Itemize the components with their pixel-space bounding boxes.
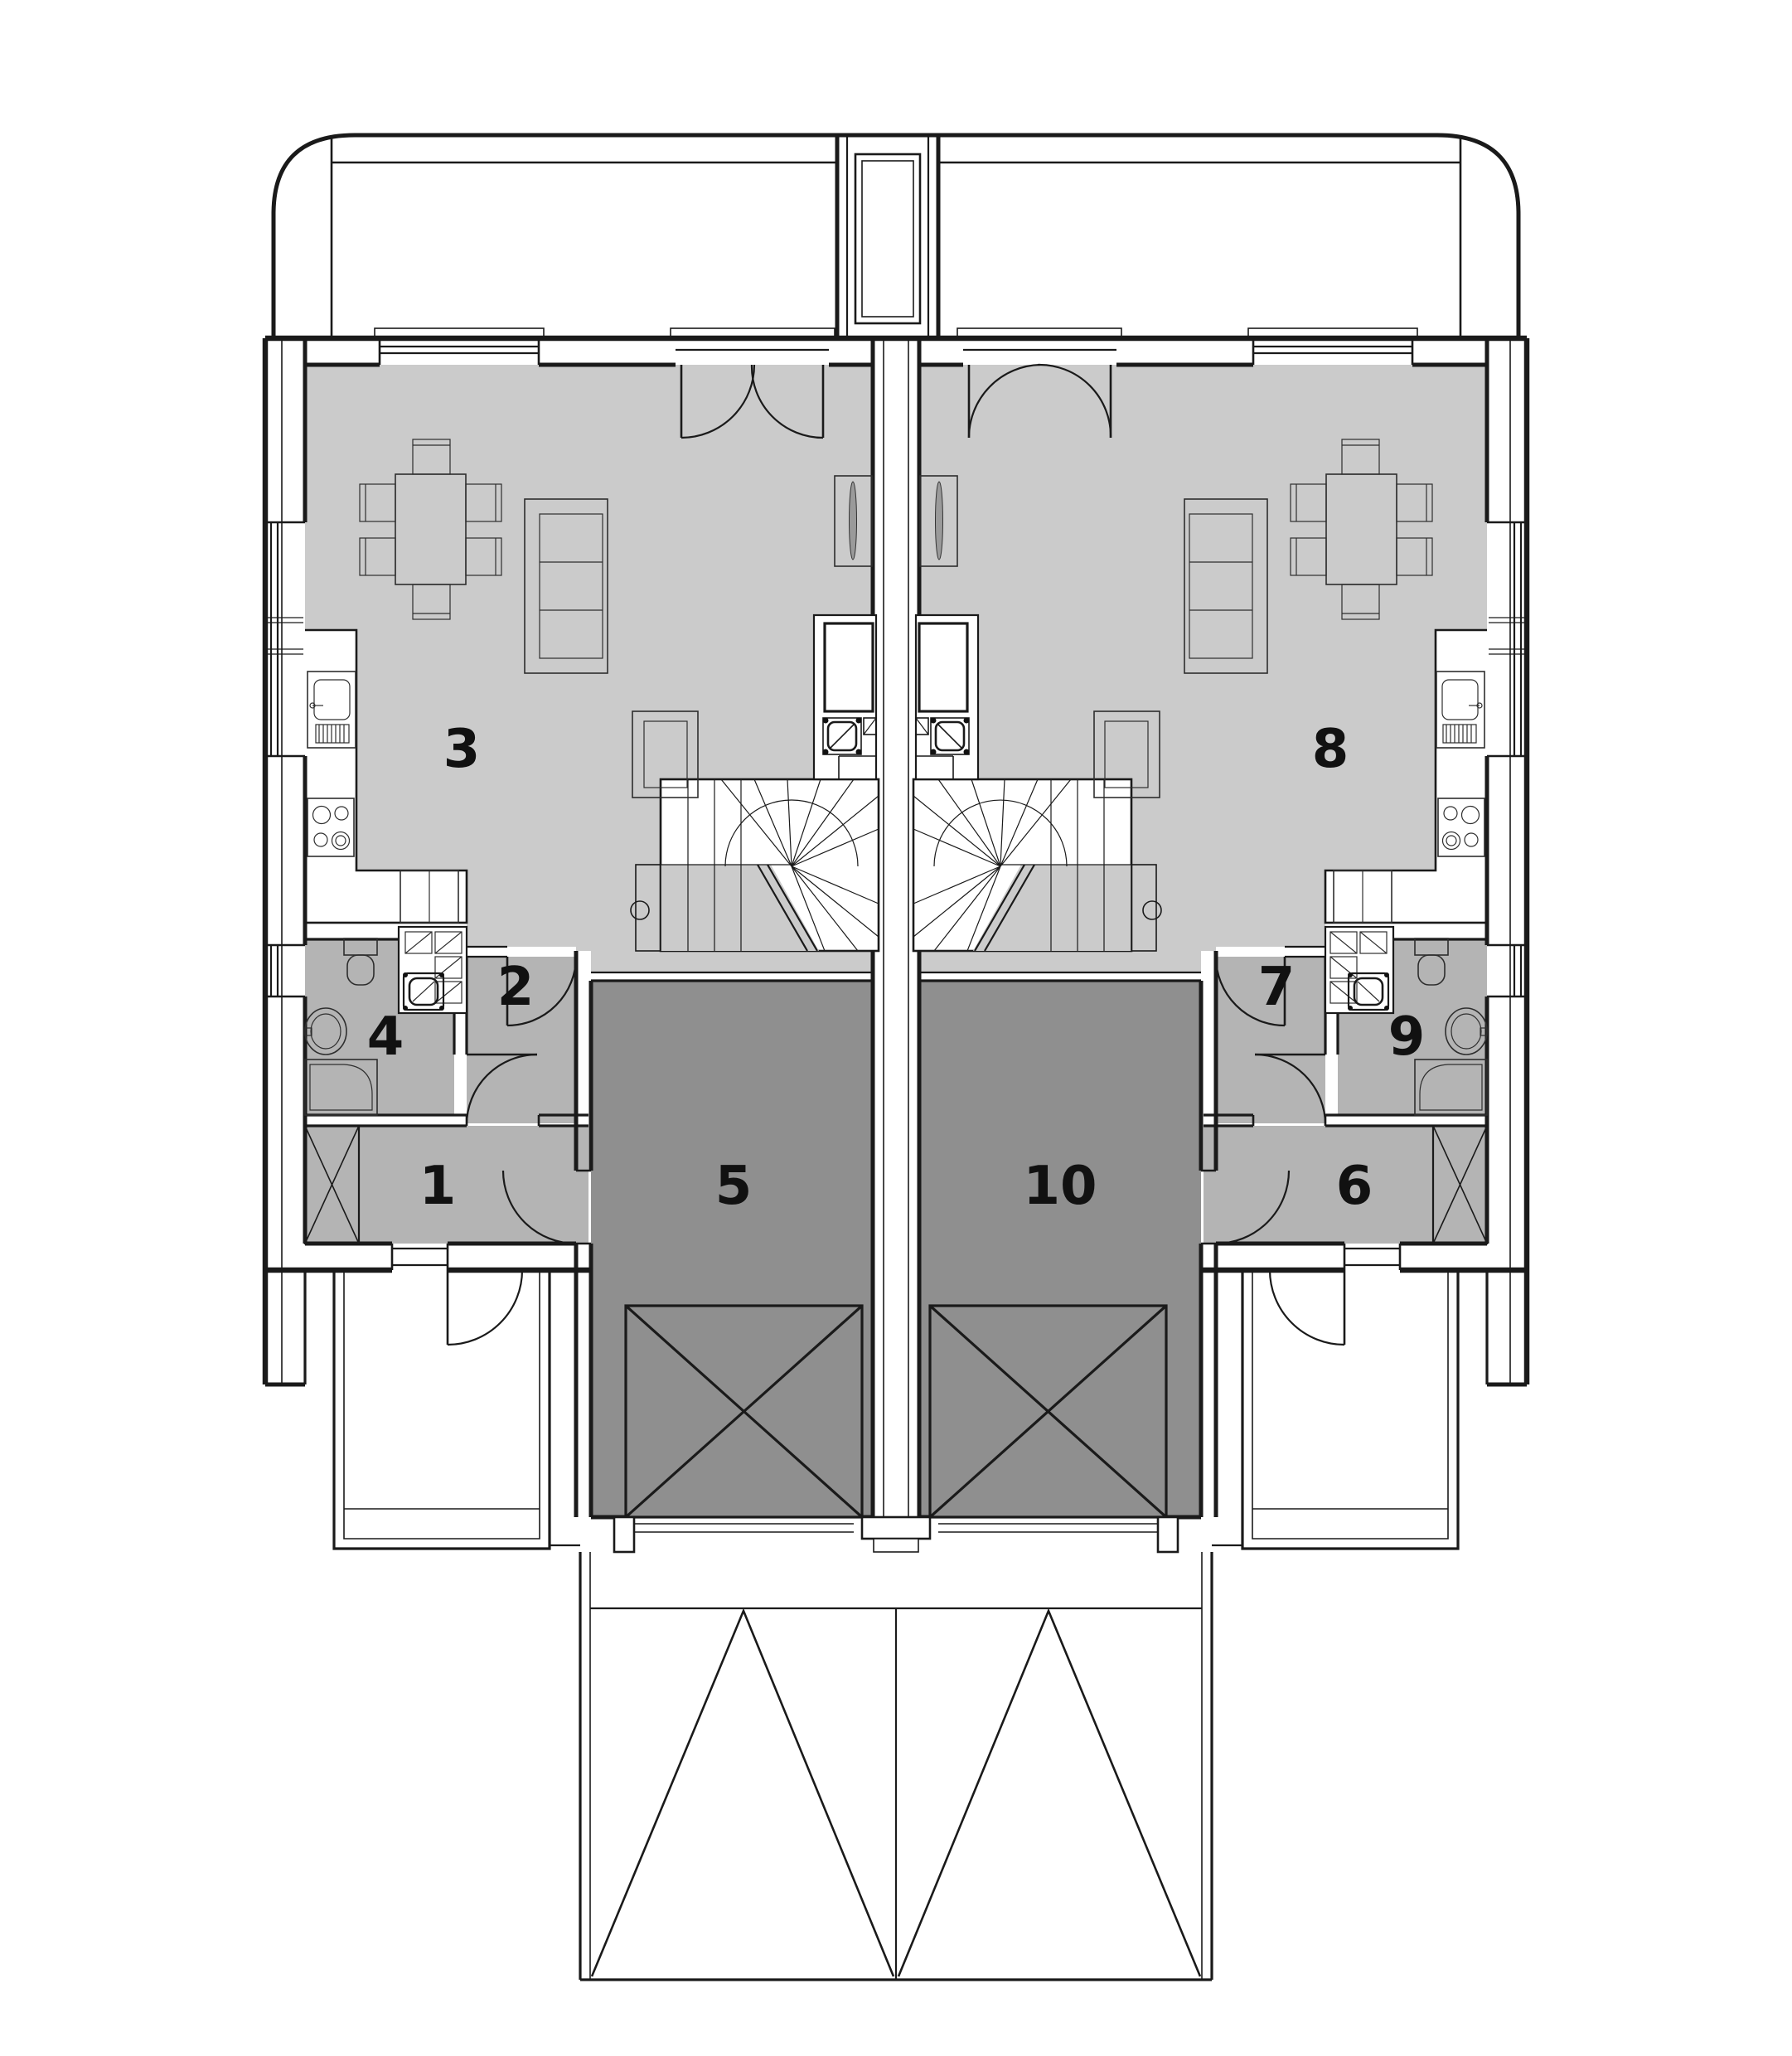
room-label-9: 9 [1388, 1006, 1426, 1068]
window-east-bath [1487, 945, 1527, 996]
room-label-5: 5 [715, 1156, 753, 1217]
balcony-outer-edge [274, 135, 1518, 338]
entrance-door-right [1270, 1270, 1344, 1345]
window-east-living [1487, 522, 1527, 756]
utility-unit-left [399, 927, 467, 1013]
room-label-6: 6 [1336, 1156, 1373, 1217]
staircase-left [631, 779, 879, 951]
room-label-4: 4 [367, 1006, 404, 1068]
porch-left [334, 1270, 580, 1549]
tv-screen [850, 482, 857, 560]
balcony [274, 135, 1518, 338]
floor-plan-page: 3 2 4 1 5 8 7 9 6 10 [0, 0, 1792, 2056]
floor-fills [305, 338, 1487, 1532]
room-label-7: 7 [1258, 957, 1296, 1018]
staircase-right [913, 779, 1161, 951]
porch-right [1212, 1270, 1458, 1549]
window-west-living [265, 522, 305, 756]
utility-unit-right [1325, 927, 1393, 1013]
window-west-bath [265, 945, 305, 996]
balcony-divider-wall [837, 135, 938, 338]
slope-arrow-right [898, 1611, 1200, 1976]
south-wall-left [265, 1244, 591, 1270]
garage-center-pier [862, 1517, 930, 1552]
floor-plan-drawing: 3 2 4 1 5 8 7 9 6 10 [0, 0, 1792, 2056]
room-label-8: 8 [1312, 719, 1349, 780]
window-north-right [1248, 328, 1417, 365]
driveway [580, 1552, 1212, 1980]
window-north-left [375, 328, 544, 365]
room-label-10: 10 [1023, 1156, 1097, 1217]
wall-band [467, 947, 576, 957]
fireplace-left [814, 615, 876, 779]
west-wall [265, 338, 305, 1384]
tv-screen [936, 482, 943, 560]
fireplace-right [916, 615, 978, 779]
garage-floor-right [919, 981, 1201, 1517]
wall-band [1216, 947, 1325, 957]
room-label-2: 2 [497, 957, 535, 1018]
slope-arrow-left [592, 1611, 894, 1976]
room-label-3: 3 [443, 719, 481, 780]
entrance-door-left [448, 1270, 522, 1345]
south-wall-right [1201, 1244, 1527, 1270]
east-wall [1487, 338, 1527, 1384]
party-wall [873, 338, 919, 1532]
room-label-1: 1 [419, 1156, 457, 1217]
garage-floor-left [591, 981, 873, 1517]
